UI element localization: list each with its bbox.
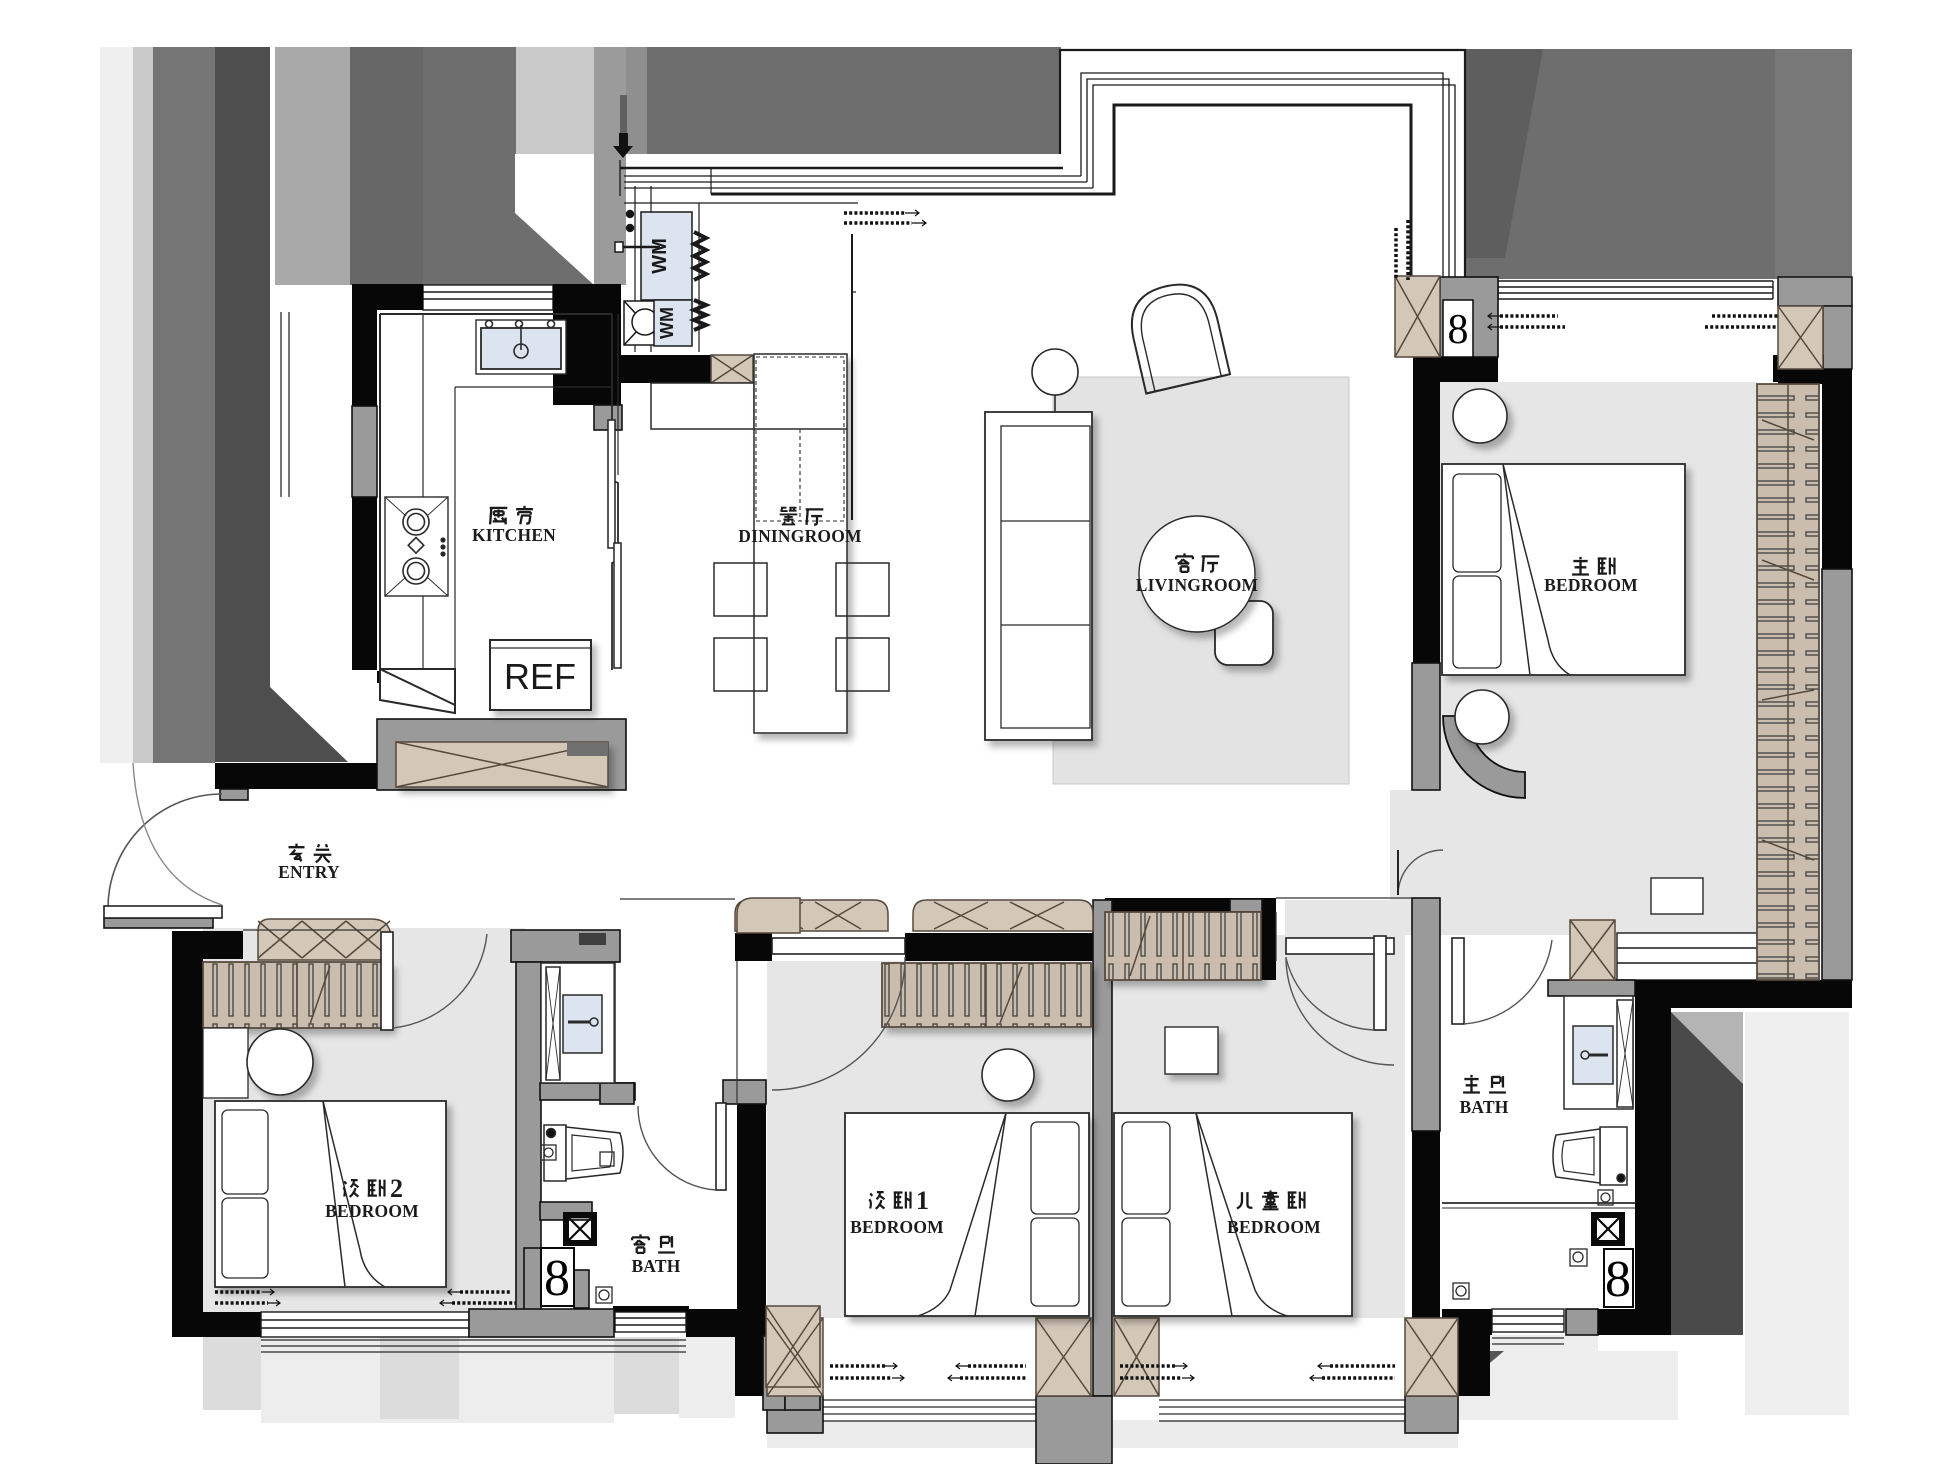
svg-text:8: 8 — [544, 1250, 570, 1307]
svg-text:BEDROOM: BEDROOM — [1544, 575, 1638, 595]
svg-text:8: 8 — [1448, 307, 1469, 353]
svg-text:2: 2 — [390, 1174, 403, 1203]
svg-text:BEDROOM: BEDROOM — [325, 1201, 419, 1221]
svg-text:DININGROOM: DININGROOM — [738, 526, 862, 546]
svg-text:BATH: BATH — [1459, 1097, 1508, 1117]
svg-text:8: 8 — [1605, 1251, 1631, 1308]
svg-text:REF: REF — [504, 656, 576, 697]
svg-text:WM: WM — [657, 307, 677, 339]
svg-text:BEDROOM: BEDROOM — [850, 1217, 944, 1237]
svg-text:BEDROOM: BEDROOM — [1227, 1217, 1321, 1237]
svg-text:KITCHEN: KITCHEN — [472, 525, 556, 545]
svg-text:BATH: BATH — [631, 1256, 680, 1276]
svg-text:ENTRY: ENTRY — [278, 862, 340, 882]
svg-text:LIVINGROOM: LIVINGROOM — [1136, 575, 1259, 595]
svg-text:WM: WM — [649, 238, 671, 274]
svg-text:1: 1 — [916, 1186, 929, 1215]
